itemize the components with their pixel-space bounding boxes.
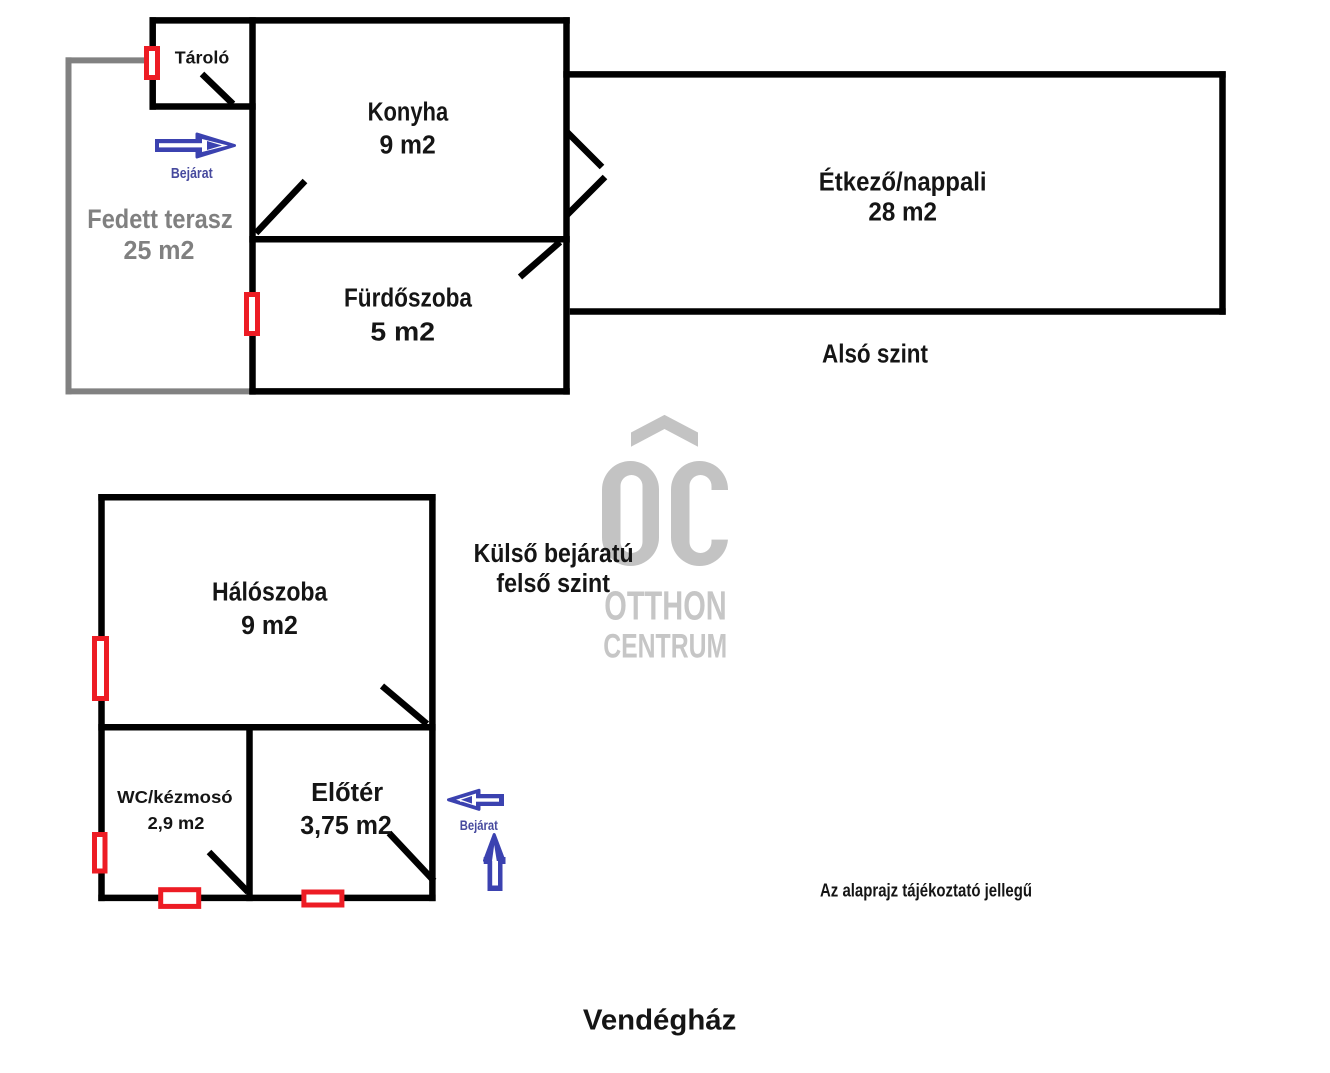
svg-text:3,75 m2: 3,75 m2	[300, 812, 392, 840]
svg-text:28 m2: 28 m2	[868, 198, 937, 226]
svg-text:Fürdőszoba: Fürdőszoba	[344, 284, 473, 312]
svg-text:Alsó szint: Alsó szint	[822, 341, 928, 369]
svg-text:Konyha: Konyha	[368, 98, 449, 126]
svg-text:Külső bejáratú: Külső bejáratú	[474, 540, 634, 568]
svg-text:5 m2: 5 m2	[370, 318, 435, 346]
svg-text:Fedett terasz: Fedett terasz	[87, 204, 232, 234]
svg-text:Előtér: Előtér	[311, 779, 383, 807]
svg-text:CENTRUM: CENTRUM	[603, 627, 727, 665]
svg-text:25 m2: 25 m2	[124, 237, 195, 265]
svg-text:Étkező/nappali: Étkező/nappali	[819, 168, 987, 197]
svg-text:9 m2: 9 m2	[241, 612, 298, 640]
svg-text:Vendégház: Vendégház	[583, 1004, 737, 1036]
svg-text:OTTHON: OTTHON	[604, 582, 726, 628]
svg-text:Hálószoba: Hálószoba	[212, 579, 328, 607]
svg-text:2,9 m2: 2,9 m2	[148, 813, 205, 833]
svg-text:WC/kézmosó: WC/kézmosó	[117, 787, 233, 807]
svg-text:Tároló: Tároló	[175, 48, 230, 68]
svg-text:Az alaprajz tájékoztató jelleg: Az alaprajz tájékoztató jellegű	[820, 880, 1032, 901]
svg-text:felső szint: felső szint	[496, 570, 610, 598]
svg-text:Bejárat: Bejárat	[171, 166, 213, 182]
svg-text:Bejárat: Bejárat	[460, 818, 499, 833]
svg-text:9 m2: 9 m2	[379, 132, 435, 160]
